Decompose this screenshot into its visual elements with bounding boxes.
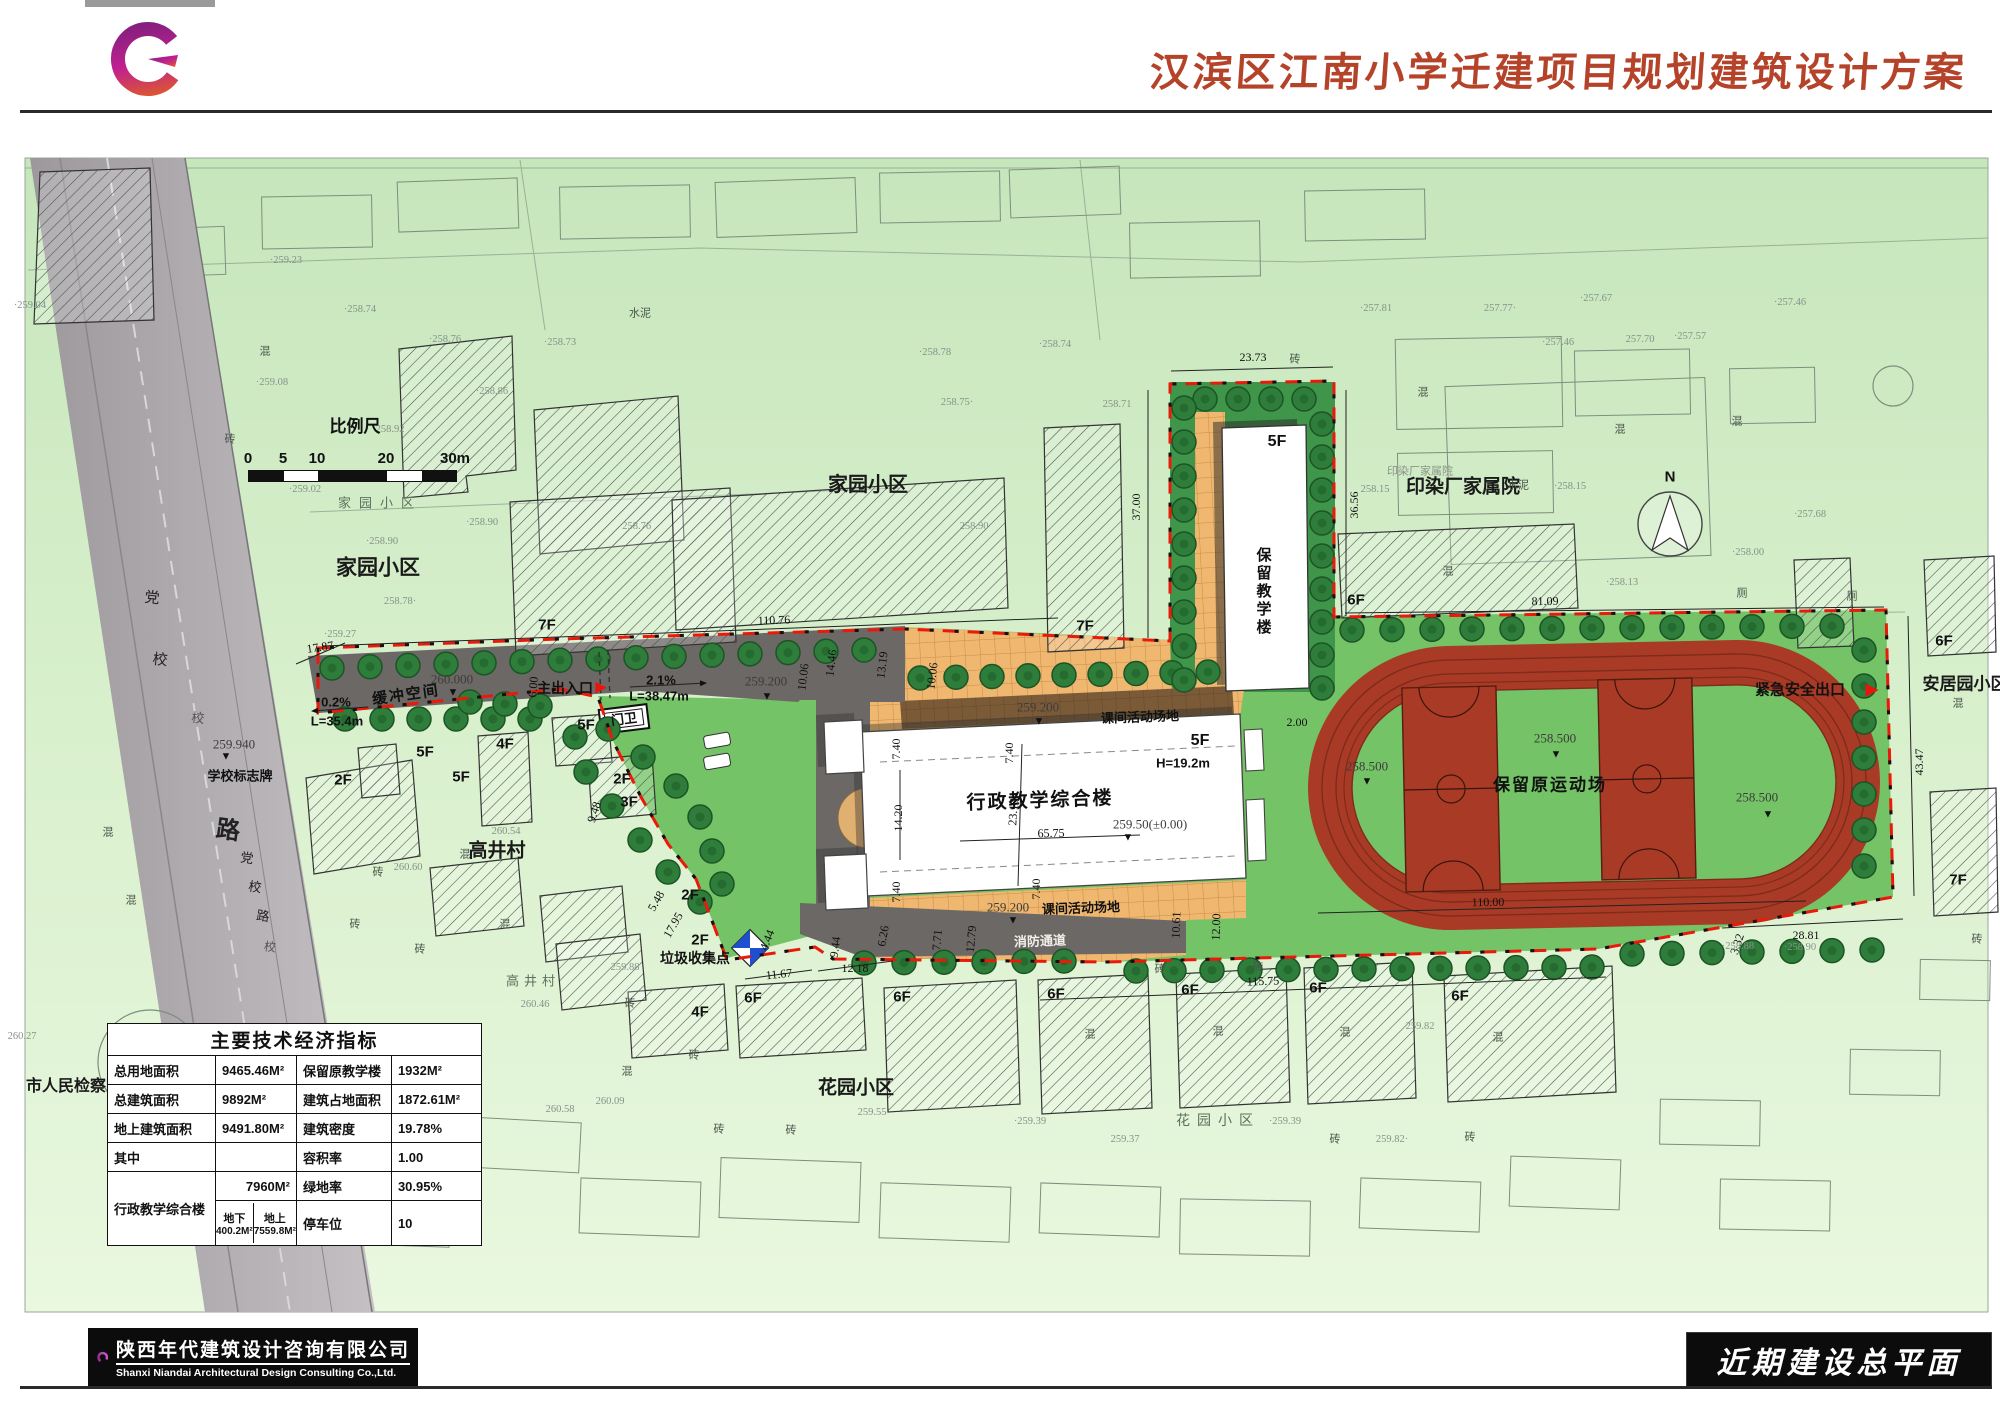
tree-icon [1172, 498, 1196, 522]
footer-company-block: 陕西年代建筑设计咨询有限公司 Shanxi Niandai Architectu… [88, 1328, 418, 1386]
tree-icon [980, 665, 1004, 689]
tree-icon [1052, 663, 1076, 687]
tree-icon [1780, 614, 1804, 638]
tree-icon [407, 707, 431, 731]
tree-icon [944, 665, 968, 689]
tree-icon [1580, 955, 1604, 979]
tree-icon [1352, 957, 1376, 981]
tree-icon [1852, 782, 1876, 806]
hatched-building [736, 978, 866, 1058]
stats-cell: 总用地面积 [108, 1056, 216, 1085]
tree-icon [548, 648, 572, 672]
tree-icon [1700, 941, 1724, 965]
tree-icon [1200, 958, 1224, 982]
tree-icon [528, 694, 552, 718]
hatched-building [1176, 968, 1290, 1108]
tree-icon [1852, 854, 1876, 878]
tree-icon [1420, 617, 1444, 641]
hatched-building [430, 858, 524, 936]
stats-table: 主要技术经济指标 总用地面积 9465.46M² 保留原教学楼 1932M² 总… [107, 1023, 482, 1246]
tree-icon [586, 647, 610, 671]
tree-icon [892, 951, 916, 975]
tree-icon [1380, 618, 1404, 642]
hatched-building [1930, 788, 1998, 916]
stats-cell: 行政教学综合楼 [108, 1172, 216, 1246]
stats-sub-value: 400.2M² [216, 1226, 253, 1237]
tree-icon [1540, 616, 1564, 640]
tree-icon [700, 643, 724, 667]
scale-tick: 30m [440, 450, 470, 467]
footer-company-cn: 陕西年代建筑设计咨询有限公司 [116, 1335, 410, 1362]
stats-cell: 30.95% [391, 1172, 481, 1201]
stats-cell: 7960M² [216, 1172, 297, 1201]
tree-icon [1852, 710, 1876, 734]
stats-cell: 总建筑面积 [108, 1085, 216, 1114]
stats-cell: 绿地率 [296, 1172, 391, 1201]
retained-teaching-building [1213, 419, 1309, 691]
scale-bar-title: 比例尺 [330, 412, 381, 437]
tree-icon [458, 690, 482, 714]
stats-cell: 停车位 [296, 1201, 391, 1246]
tree-icon [1852, 638, 1876, 662]
tree-icon [710, 872, 734, 896]
tree-icon [1172, 668, 1196, 692]
hatched-building [672, 478, 1008, 630]
tree-icon [1660, 615, 1684, 639]
tree-icon [656, 860, 680, 884]
tree-icon [320, 656, 344, 680]
tree-icon [1310, 445, 1334, 469]
stats-cell: 建筑密度 [296, 1114, 391, 1143]
tree-icon [434, 652, 458, 676]
stats-cell [216, 1143, 297, 1172]
tree-icon [664, 774, 688, 798]
tree-icon [1620, 616, 1644, 640]
tree-icon [1172, 532, 1196, 556]
scale-tick: 0 [244, 450, 252, 467]
tree-icon [1500, 617, 1524, 641]
drawing-title-block: 近期建设总平面 [1686, 1332, 1992, 1387]
hatched-building [1338, 524, 1578, 618]
tree-icon [510, 650, 534, 674]
tree-icon [1660, 941, 1684, 965]
tree-icon [1314, 957, 1338, 981]
tree-icon [563, 725, 587, 749]
tree-icon [1310, 412, 1334, 436]
tree-icon [624, 646, 648, 670]
tree-icon [1226, 387, 1250, 411]
tree-icon [852, 951, 876, 975]
tree-icon [1310, 544, 1334, 568]
stats-sub-label: 地上 [264, 1210, 286, 1226]
tree-icon [1460, 617, 1484, 641]
admin-teaching-building [816, 707, 1266, 910]
tree-icon [1852, 818, 1876, 842]
tree-icon [700, 839, 724, 863]
basketball-court-east [1598, 678, 1696, 880]
footer-rule [20, 1386, 1992, 1389]
tree-icon [776, 641, 800, 665]
tree-icon [358, 655, 382, 679]
tree-icon [1580, 616, 1604, 640]
hatched-building [478, 732, 532, 826]
tree-icon [1172, 634, 1196, 658]
tree-icon [1196, 660, 1220, 684]
tree-icon [1310, 610, 1334, 634]
tree-icon [1820, 939, 1844, 963]
tree-icon [396, 653, 420, 677]
stats-cell: 容积率 [296, 1143, 391, 1172]
tree-icon [1428, 956, 1452, 980]
tree-icon [1860, 938, 1884, 962]
tree-icon [1466, 956, 1490, 980]
stats-cell: 9892M² [216, 1085, 297, 1114]
footer-logo-icon [96, 1333, 110, 1381]
tree-icon [1820, 614, 1844, 638]
tree-icon [1310, 676, 1334, 700]
tree-icon [1620, 942, 1644, 966]
footer-company-en: Shanxi Niandai Architectural Design Cons… [116, 1367, 410, 1379]
tree-icon [1852, 746, 1876, 770]
tree-icon [1340, 618, 1364, 642]
stats-sub-label: 地下 [223, 1210, 245, 1226]
tree-icon [1172, 464, 1196, 488]
hatched-building [884, 980, 1020, 1112]
tree-icon [1780, 939, 1804, 963]
tree-icon [1310, 643, 1334, 667]
tree-icon [600, 794, 624, 818]
stats-title: 主要技术经济指标 [108, 1024, 482, 1056]
hatched-building [1444, 966, 1616, 1102]
stats-cell: 1872.61M² [391, 1085, 481, 1114]
tree-icon [1852, 674, 1876, 698]
stats-cell: 1.00 [391, 1143, 481, 1172]
tree-icon [852, 638, 876, 662]
tree-icon [1310, 511, 1334, 535]
tree-icon [1310, 478, 1334, 502]
stats-sub-value: 7559.8M² [254, 1226, 296, 1237]
tree-icon [688, 805, 712, 829]
scale-tick: 5 [279, 450, 287, 467]
hatched-building [34, 168, 154, 324]
tree-icon [1124, 662, 1148, 686]
tree-icon [814, 639, 838, 663]
tree-icon [662, 644, 686, 668]
tree-icon [1088, 662, 1112, 686]
tree-icon [1390, 957, 1414, 981]
tree-icon [631, 745, 655, 769]
tree-icon [1292, 387, 1316, 411]
tree-icon [1740, 940, 1764, 964]
tree-icon [472, 651, 496, 675]
tree-icon [1276, 958, 1300, 982]
hatched-building [358, 744, 400, 798]
stats-cell: 19.78% [391, 1114, 481, 1143]
running-track [1305, 637, 1883, 933]
stats-cell: 9465.46M² [216, 1056, 297, 1085]
tree-icon [1172, 600, 1196, 624]
stats-cell: 1932M² [391, 1056, 481, 1085]
tree-icon [1542, 955, 1566, 979]
tree-icon [1504, 956, 1528, 980]
tree-icon [1162, 959, 1186, 983]
scale-bar: 比例尺 0 5 10 20 30m [240, 412, 470, 487]
tree-icon [1172, 430, 1196, 454]
tree-icon [628, 828, 652, 852]
tree-icon [1016, 664, 1040, 688]
scale-tick: 10 [309, 450, 326, 467]
tree-icon [1259, 387, 1283, 411]
tree-icon [1172, 566, 1196, 590]
tree-icon [1740, 615, 1764, 639]
scale-tick: 20 [378, 450, 395, 467]
tree-icon [1700, 615, 1724, 639]
tree-icon [574, 760, 598, 784]
drawing-title: 近期建设总平面 [1717, 1338, 1962, 1382]
tree-icon [738, 642, 762, 666]
stats-cell: 保留原教学楼 [296, 1056, 391, 1085]
page: 汉滨区江南小学迁建项目规划建筑设计方案 [0, 0, 2000, 1414]
stats-cell: 地下400.2M² 地上7559.8M² [216, 1201, 297, 1246]
tree-icon [932, 950, 956, 974]
stats-cell: 10 [391, 1201, 481, 1246]
footer-divider [116, 1363, 410, 1365]
hatched-building [1924, 556, 1996, 656]
stats-cell: 建筑占地面积 [296, 1085, 391, 1114]
north-compass [1638, 492, 1702, 556]
tree-icon [908, 666, 932, 690]
hatched-building [1304, 962, 1416, 1104]
tree-icon [1172, 396, 1196, 420]
stats-cell: 地上建筑面积 [108, 1114, 216, 1143]
tree-icon [370, 707, 394, 731]
tree-icon [1310, 577, 1334, 601]
basketball-court-west [1402, 686, 1500, 892]
stats-cell: 9491.80M² [216, 1114, 297, 1143]
stats-cell: 其中 [108, 1143, 216, 1172]
scale-bar-segments [248, 470, 457, 482]
hatched-building [556, 934, 646, 1010]
hatched-building [1038, 974, 1152, 1114]
tree-icon [1238, 958, 1262, 982]
